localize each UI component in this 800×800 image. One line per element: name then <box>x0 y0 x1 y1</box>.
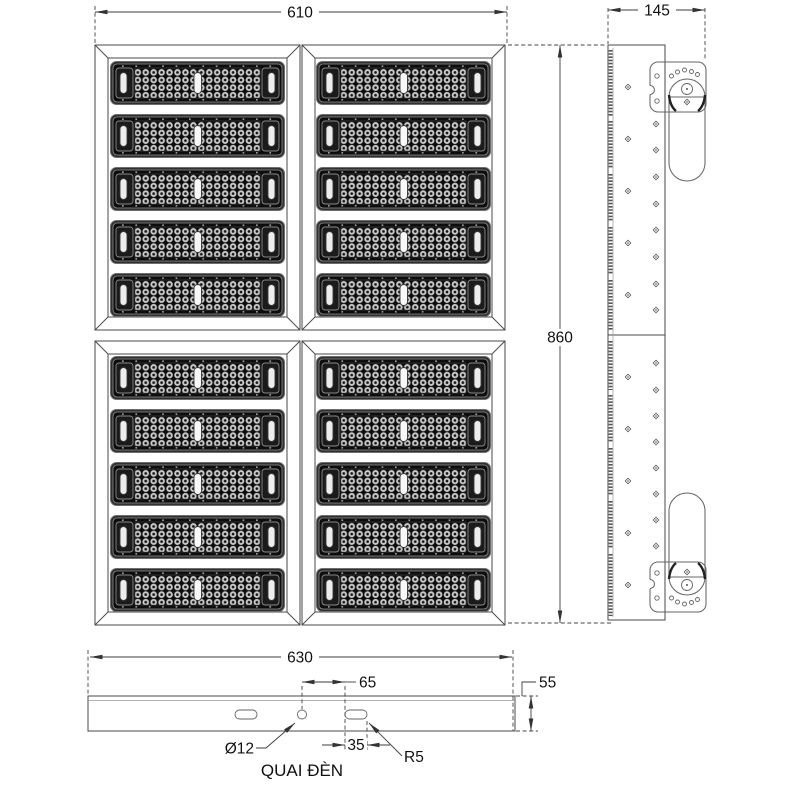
led-module <box>317 115 491 158</box>
led-module <box>317 274 491 317</box>
dim-slot-width: 35 <box>322 737 390 754</box>
side-view <box>608 45 706 620</box>
dim-front-width: 610 <box>95 4 507 22</box>
led-module <box>317 516 491 559</box>
dim-bar-height-label: 55 <box>539 675 556 692</box>
led-module <box>111 516 285 559</box>
led-module <box>111 463 285 506</box>
dim-hole-offset: 65 <box>302 675 376 692</box>
led-module <box>317 62 491 105</box>
led-module <box>111 569 285 612</box>
slot-radius-label: R5 <box>404 749 424 766</box>
led-module <box>111 62 285 105</box>
led-module <box>111 168 285 211</box>
technical-drawing-canvas: 610 145 860 630 65 55 <box>0 0 800 800</box>
dim-bar-width-label: 630 <box>287 650 313 667</box>
dim-side-depth-label: 145 <box>644 3 670 20</box>
bottom-view <box>88 696 515 731</box>
led-module <box>111 221 285 264</box>
dim-front-height: 860 <box>540 45 580 623</box>
dim-side-depth: 145 <box>608 2 705 20</box>
hole-diameter-label: Ø12 <box>225 741 254 758</box>
led-module <box>317 410 491 453</box>
bar-center-hole <box>298 710 307 719</box>
dim-bar-width: 630 <box>90 649 512 667</box>
led-module <box>317 168 491 211</box>
technical-drawing-page: 610 145 860 630 65 55 <box>0 0 800 800</box>
led-module <box>111 410 285 453</box>
side-body <box>608 45 665 620</box>
dim-slot-width-label: 35 <box>347 737 364 754</box>
dim-hole-offset-label: 65 <box>359 675 376 692</box>
dim-bar-height: 55 <box>522 675 556 732</box>
front-view <box>95 45 505 625</box>
bar-oval-slot <box>235 710 257 719</box>
led-module <box>111 274 285 317</box>
dim-front-height-label: 860 <box>547 330 573 347</box>
led-module <box>317 569 491 612</box>
bar-right-slot <box>345 710 367 719</box>
led-module <box>111 357 285 400</box>
led-module <box>317 463 491 506</box>
led-module <box>317 357 491 400</box>
bottom-bar-name-label: QUAI ĐÈN <box>261 761 343 780</box>
led-module <box>111 115 285 158</box>
dim-front-width-label: 610 <box>287 5 313 22</box>
led-module <box>317 221 491 264</box>
